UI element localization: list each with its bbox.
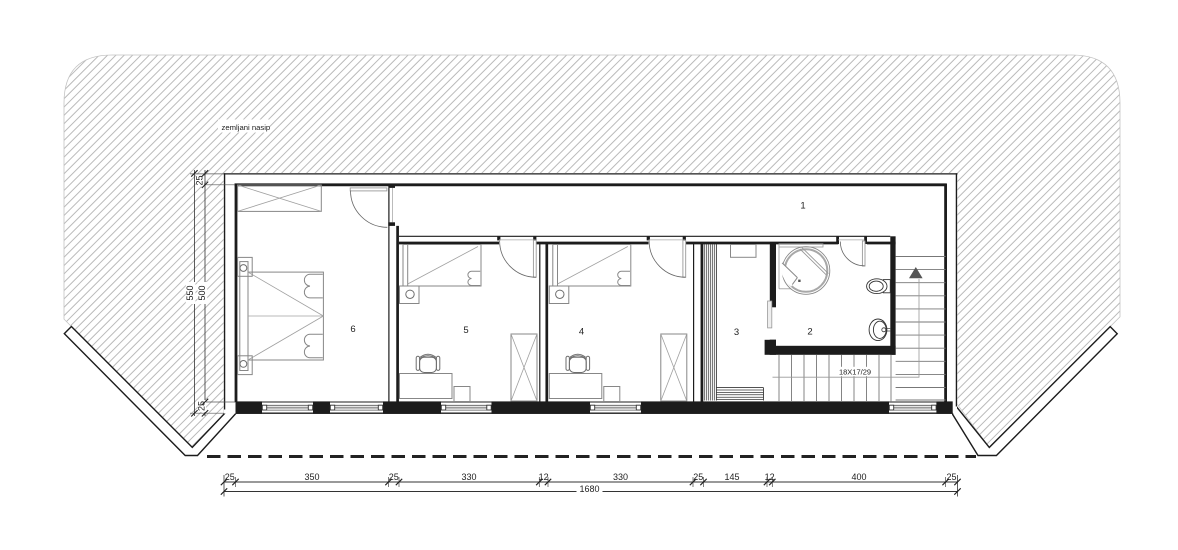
svg-text:550: 550 [185, 285, 195, 300]
svg-text:4: 4 [579, 326, 584, 337]
svg-text:zemljani nasip: zemljani nasip [222, 123, 271, 132]
svg-text:330: 330 [613, 472, 628, 482]
svg-text:1: 1 [800, 200, 805, 211]
svg-text:25: 25 [389, 472, 399, 482]
svg-text:330: 330 [461, 472, 476, 482]
svg-text:12: 12 [539, 472, 549, 482]
svg-text:25: 25 [946, 472, 956, 482]
svg-text:12: 12 [765, 472, 775, 482]
svg-text:25: 25 [225, 472, 235, 482]
svg-text:6: 6 [350, 324, 355, 335]
svg-text:2: 2 [807, 326, 812, 337]
svg-text:1680: 1680 [579, 484, 599, 494]
svg-text:25: 25 [194, 175, 204, 185]
svg-text:350: 350 [304, 472, 319, 482]
svg-text:18X17/29: 18X17/29 [839, 368, 871, 377]
svg-text:400: 400 [851, 472, 866, 482]
svg-text:5: 5 [463, 325, 468, 336]
svg-text:3: 3 [734, 327, 739, 338]
svg-text:25: 25 [693, 472, 703, 482]
svg-text:145: 145 [724, 472, 739, 482]
svg-text:500: 500 [197, 285, 207, 300]
